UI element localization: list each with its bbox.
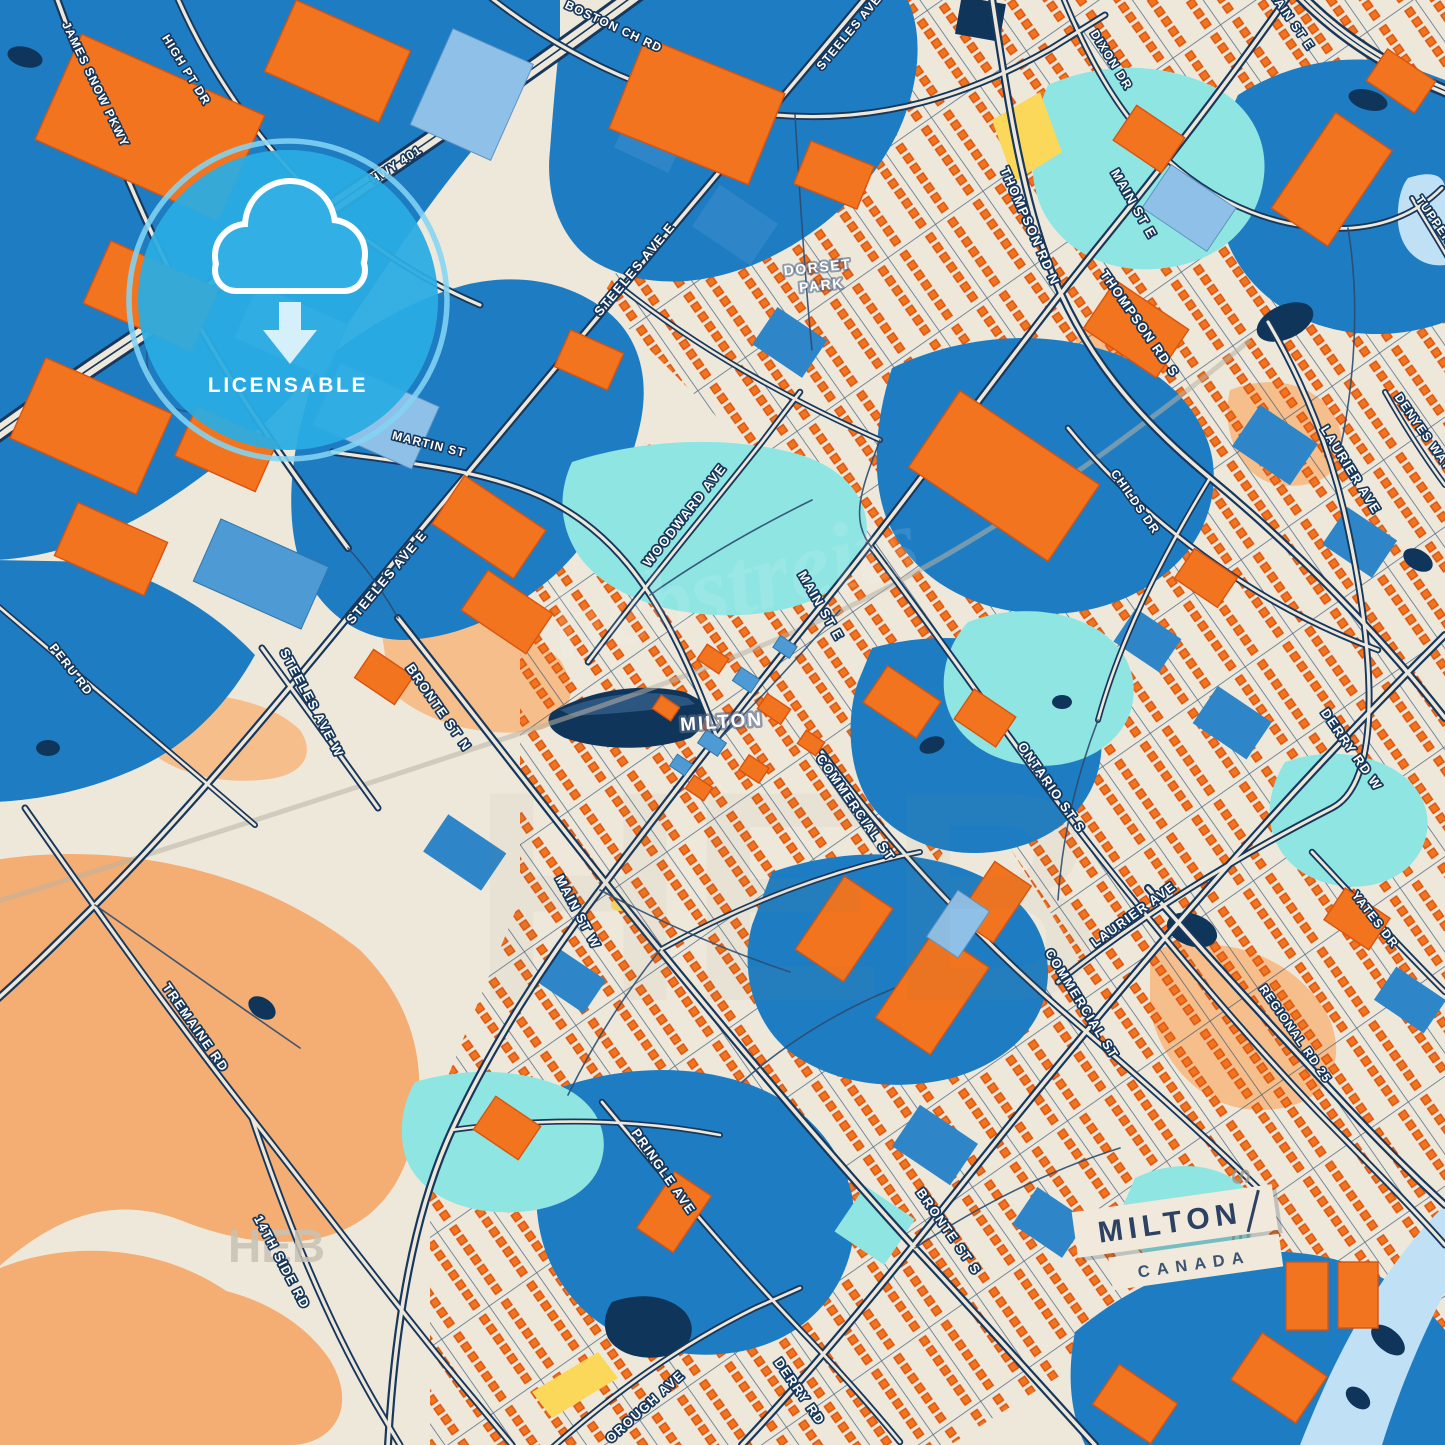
badge-label: LICENSABLE xyxy=(208,374,368,397)
map-poster: HEB hebstreits HEB STREIT JAMES SNOW PKW… xyxy=(0,0,1445,1445)
licensable-badge: LICENSABLE xyxy=(129,141,447,459)
map-canvas: HEB hebstreits HEB STREIT JAMES SNOW PKW… xyxy=(0,0,1445,1445)
